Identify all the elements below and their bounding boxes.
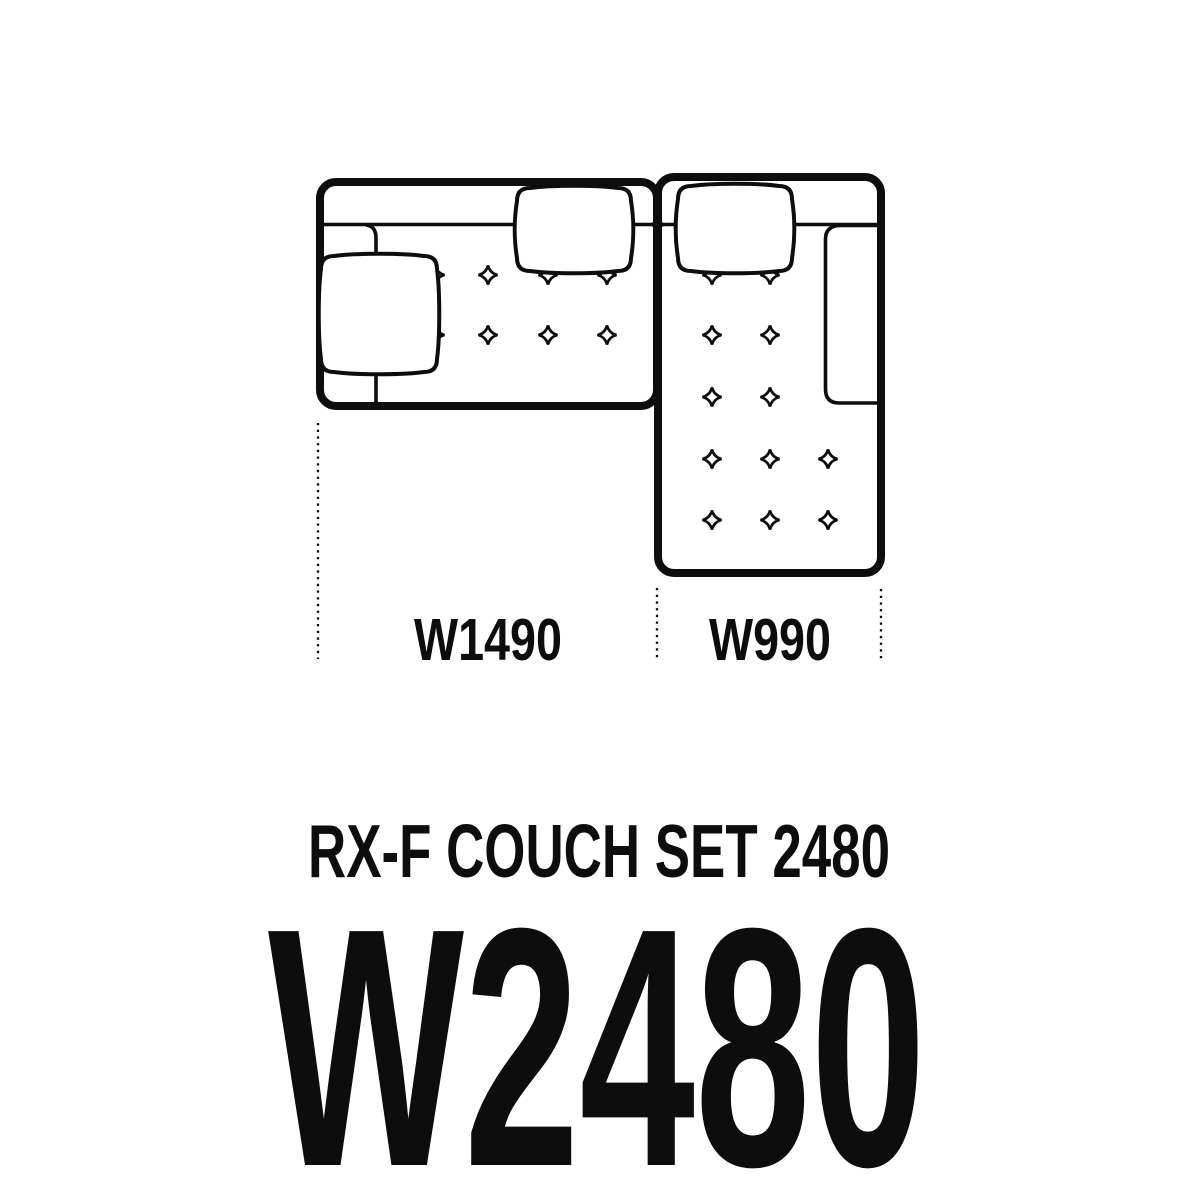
left-section-width-label: W1490: [414, 607, 562, 673]
total-width-label: W2480: [268, 858, 926, 1200]
back-cushion-right: [676, 184, 795, 274]
couch-floor-plan-figure: W1490 W990 RX-F COUCH SET 2480 W2480: [0, 0, 1200, 1200]
back-cushion-left: [515, 186, 634, 274]
right-section-width-label: W990: [709, 607, 831, 673]
couch-spec-sheet: W1490 W990 RX-F COUCH SET 2480 W2480: [0, 0, 1200, 1200]
left-arm-cushion: [319, 254, 440, 375]
